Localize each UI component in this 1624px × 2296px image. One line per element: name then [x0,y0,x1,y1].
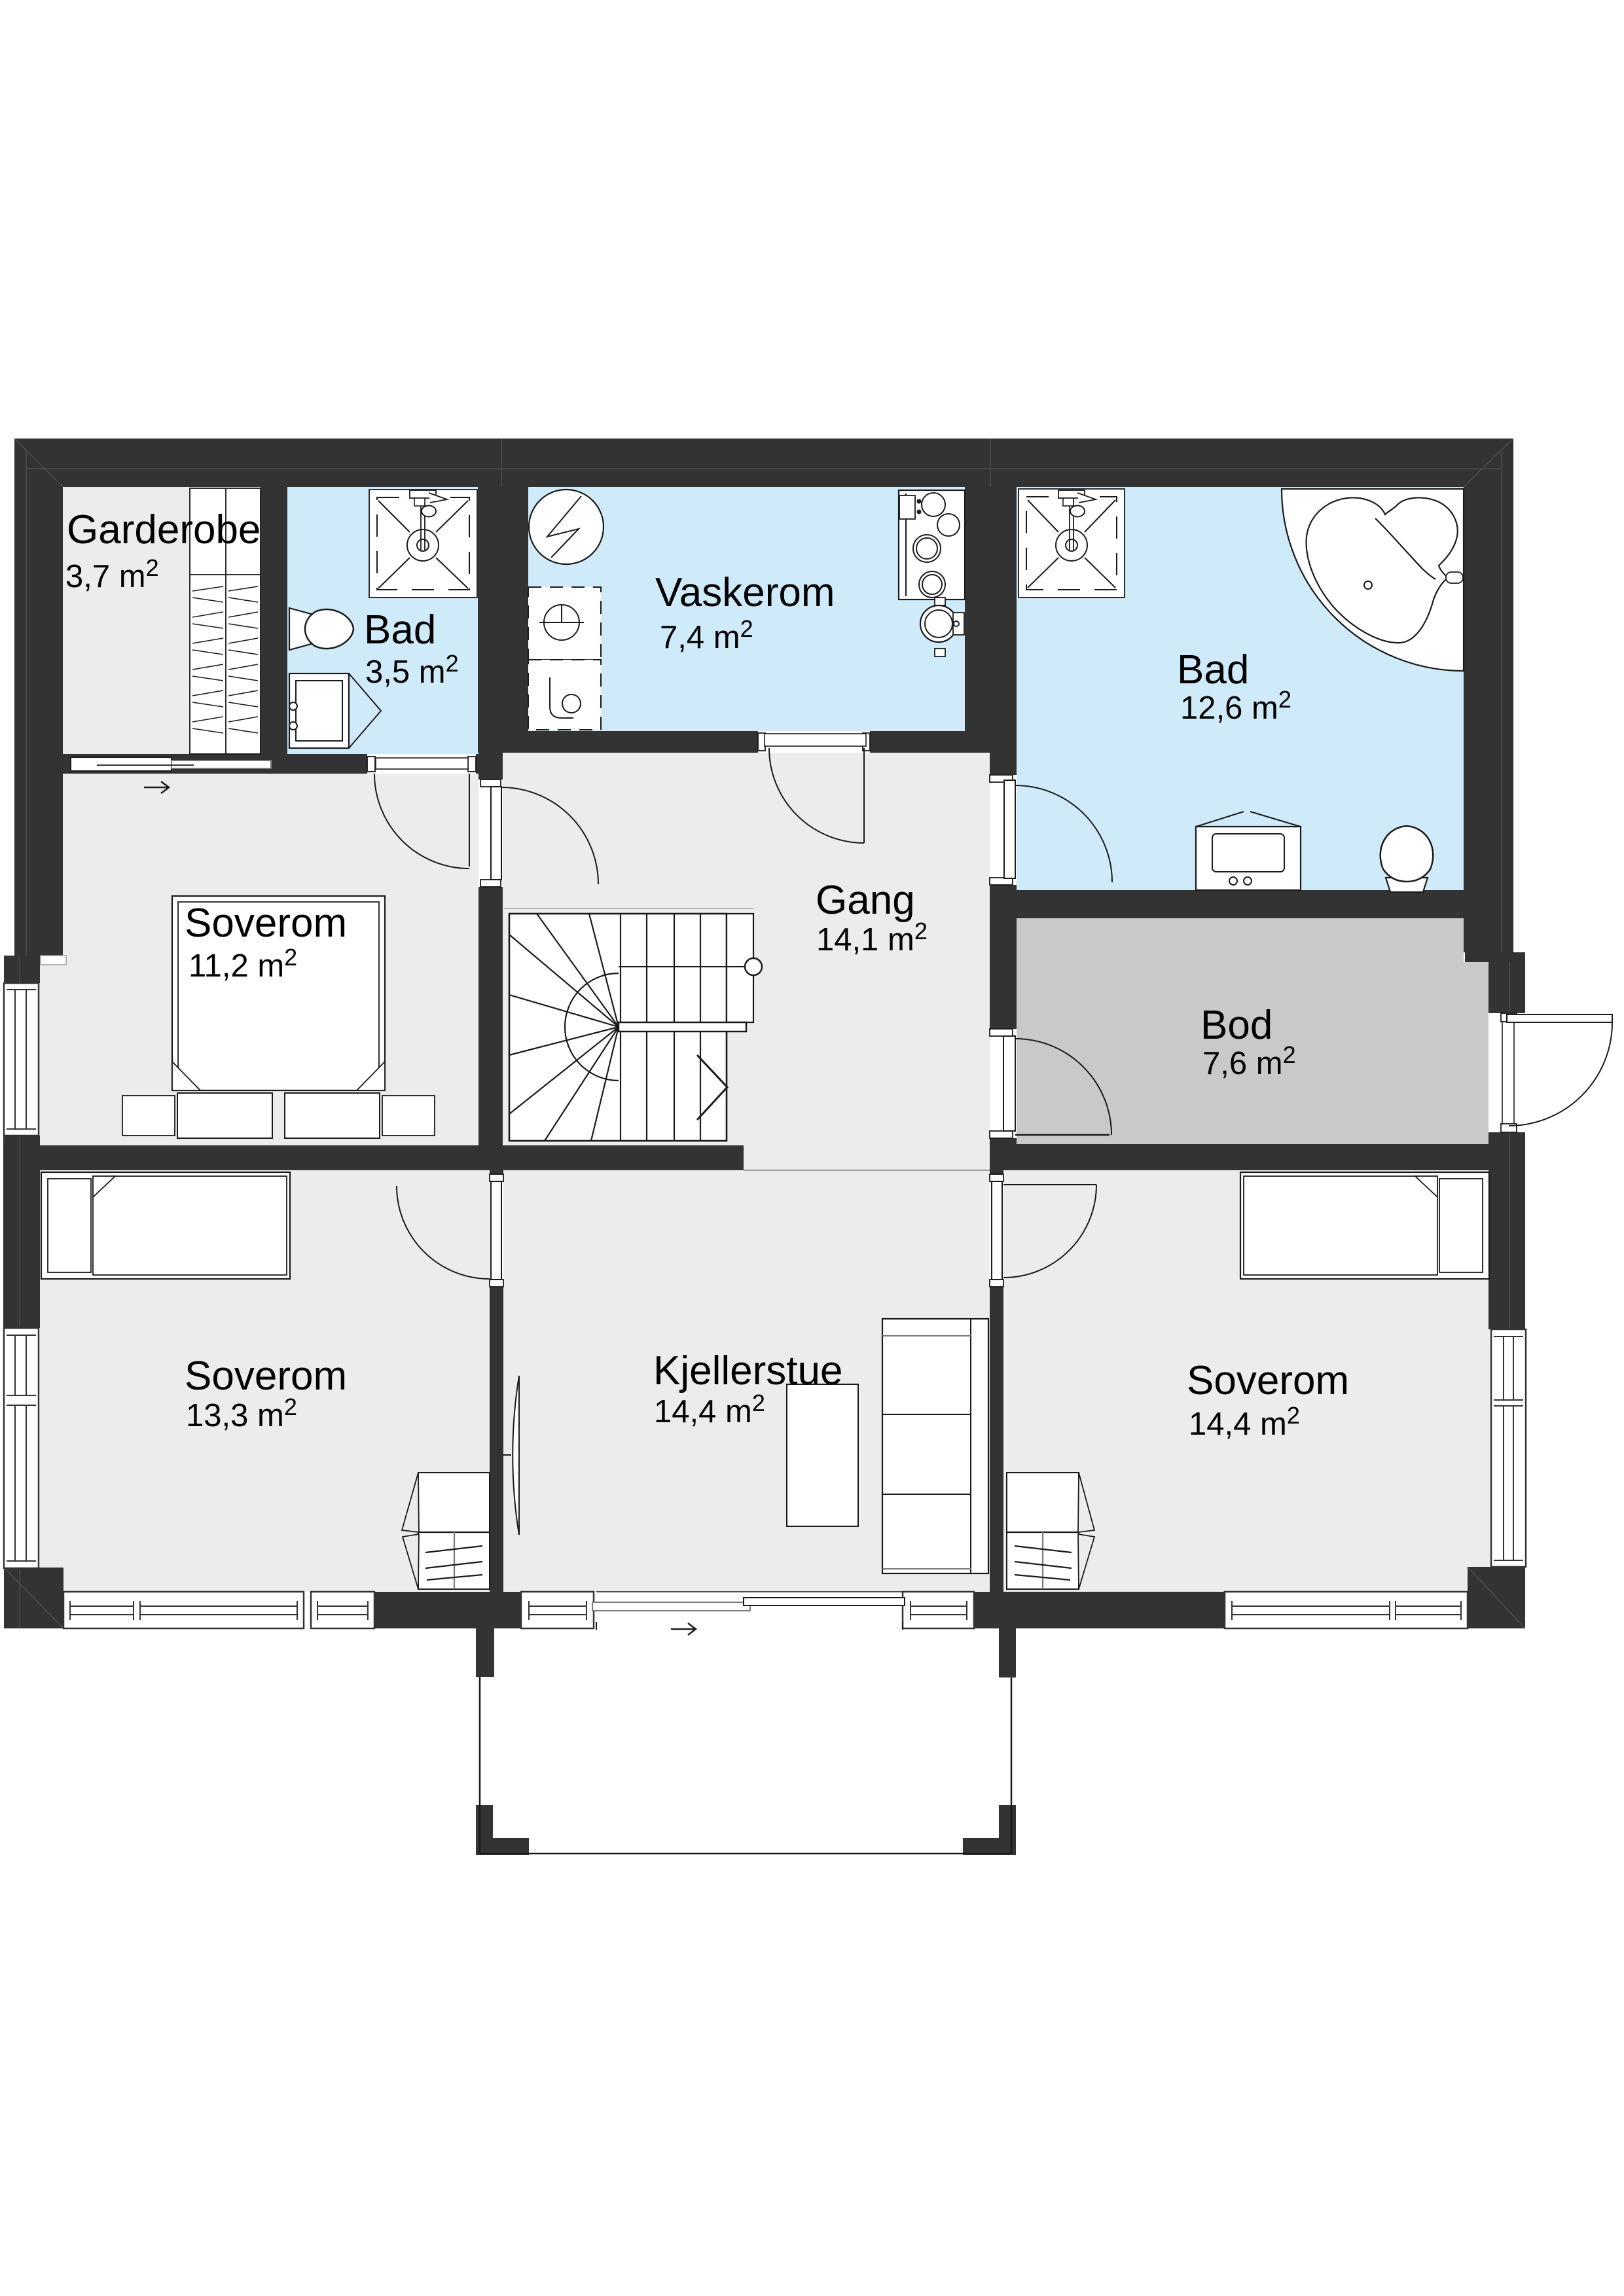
svg-text:Bad: Bad [364,607,436,653]
svg-text:Soverom: Soverom [185,901,347,946]
svg-text:14,1 m2: 14,1 m2 [816,918,928,958]
svg-text:14,4 m2: 14,4 m2 [1189,1402,1300,1442]
svg-text:Garderobe: Garderobe [67,507,261,552]
svg-text:3,7 m2: 3,7 m2 [65,554,159,594]
svg-text:Vaskerom: Vaskerom [655,570,835,615]
svg-text:Soverom: Soverom [185,1354,347,1399]
svg-text:7,4 m2: 7,4 m2 [660,615,753,655]
svg-text:Soverom: Soverom [1187,1358,1349,1403]
svg-text:Gang: Gang [816,878,915,923]
svg-text:Kjellerstue: Kjellerstue [653,1348,842,1393]
svg-text:13,3 m2: 13,3 m2 [186,1393,297,1433]
svg-text:14,4 m2: 14,4 m2 [654,1390,765,1429]
svg-text:12,6 m2: 12,6 m2 [1180,686,1291,726]
svg-text:3,5 m2: 3,5 m2 [365,650,459,690]
svg-text:11,2 m2: 11,2 m2 [189,944,297,984]
svg-text:Bod: Bod [1200,1003,1272,1048]
svg-text:7,6 m2: 7,6 m2 [1202,1041,1296,1081]
svg-text:Bad: Bad [1177,647,1249,692]
